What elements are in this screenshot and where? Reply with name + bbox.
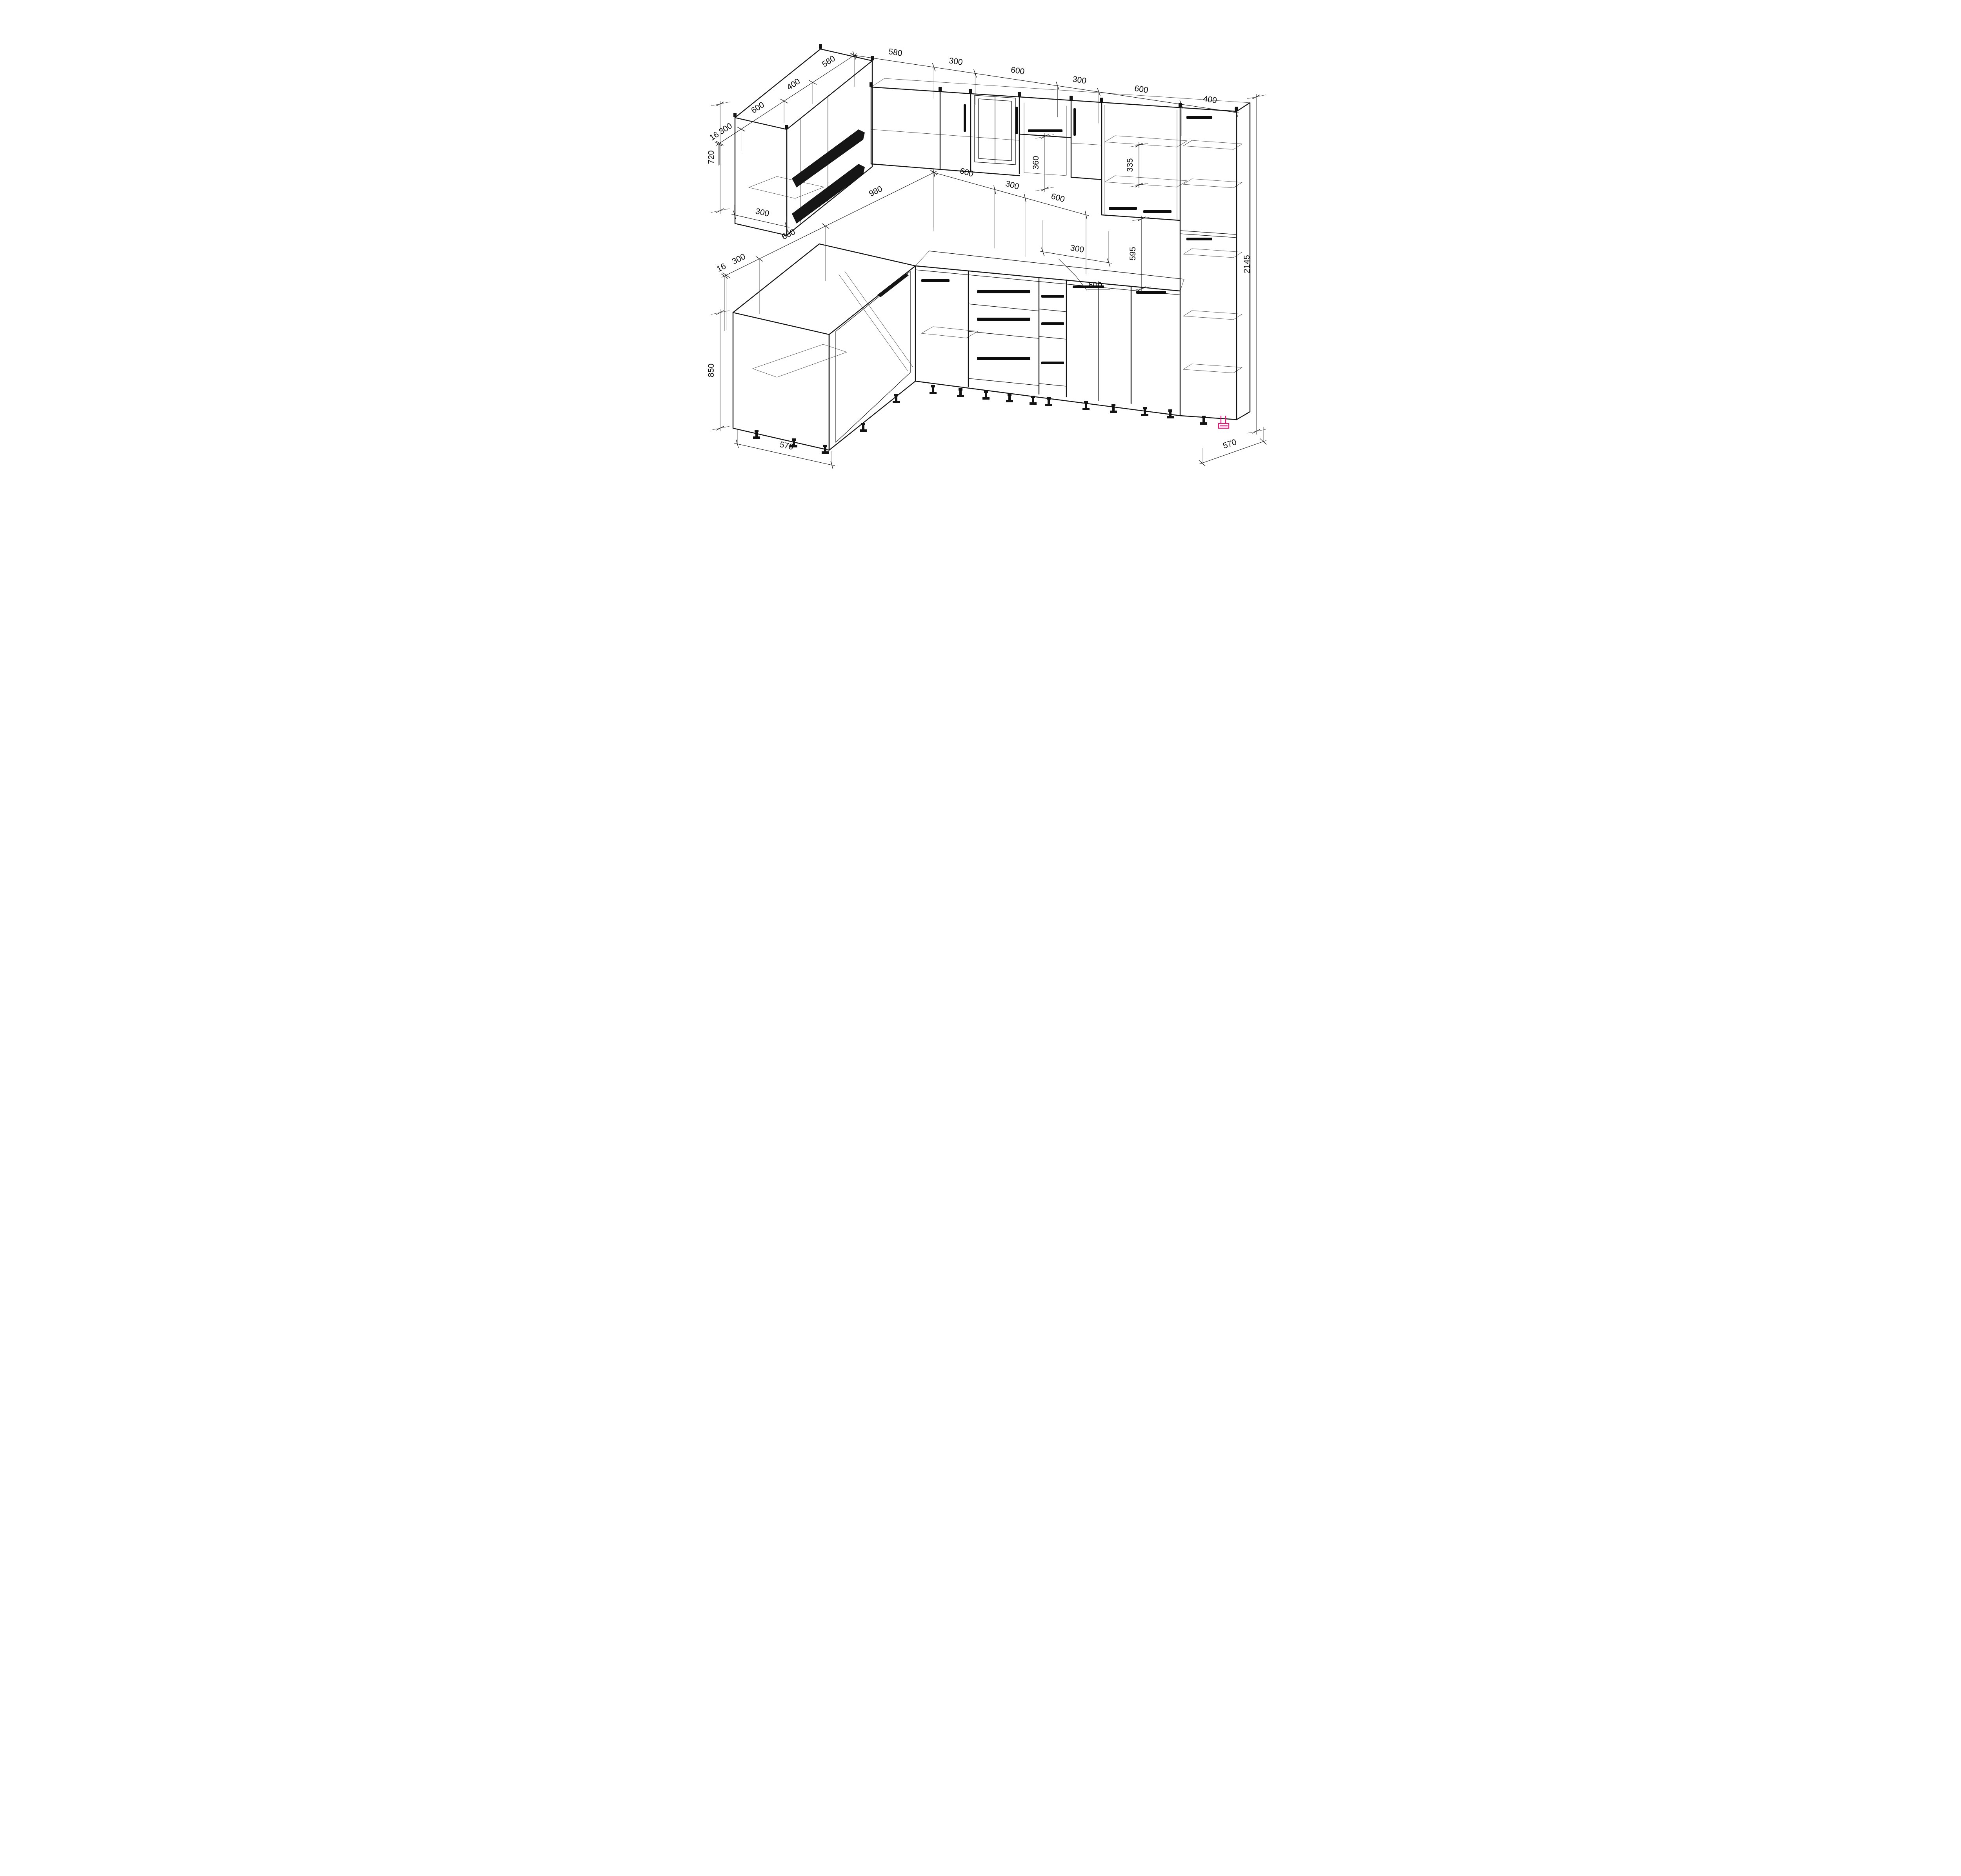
wall-cabinet-left-side-panel xyxy=(735,118,787,235)
rect xyxy=(1111,404,1115,406)
adjustable-feet xyxy=(753,385,1229,454)
cabinet-handle xyxy=(1186,238,1212,240)
dimension-label: 335 xyxy=(1126,158,1135,172)
cabinet-handle xyxy=(1015,107,1018,134)
cabinet-scene xyxy=(733,49,1250,450)
adjustable-foot xyxy=(930,385,937,394)
path xyxy=(1221,416,1226,424)
rect xyxy=(931,385,935,387)
rect xyxy=(822,451,829,454)
rect xyxy=(1144,409,1146,414)
dimension-annotations: 1630060040058058030060030060040016300600… xyxy=(707,47,1266,469)
dimension-chain-wall-cab-depth-300: 300 xyxy=(731,205,789,231)
dimension-chain-niche-width-300: 300 xyxy=(1040,220,1112,267)
dimension-label: 600 xyxy=(749,100,766,115)
dimension-chain-wall-top-width: 580300600300600400 xyxy=(851,47,1239,144)
adjustable-foot xyxy=(860,423,867,432)
rect xyxy=(893,401,900,403)
rect xyxy=(1008,393,1011,396)
rect xyxy=(1110,411,1117,413)
tall-cabinet-edges xyxy=(1180,107,1237,420)
adjustable-foot xyxy=(982,391,990,400)
wall-run-top-edge xyxy=(871,87,1237,111)
rect xyxy=(894,394,898,396)
rect xyxy=(862,425,864,429)
dimension-label: 400 xyxy=(1202,94,1217,105)
adjustable-foot xyxy=(1110,404,1117,413)
rect xyxy=(1031,396,1035,398)
dimension-label: 300 xyxy=(1070,244,1084,254)
dimension-label: 400 xyxy=(785,77,802,92)
cabinet-handle xyxy=(977,318,1030,321)
rect xyxy=(1112,406,1115,411)
rect xyxy=(1169,412,1172,416)
dimension-label: 595 xyxy=(1128,247,1137,260)
dimension-vertical-wall-cab-height-720: 720 xyxy=(707,101,729,214)
rect xyxy=(753,436,760,439)
bridge-cabinet-bottom xyxy=(1019,134,1071,138)
cabinet-handle xyxy=(977,290,1030,293)
dimension-label: 570 xyxy=(1222,438,1238,451)
dimension-label: 16 xyxy=(708,130,720,142)
dimension-label: 720 xyxy=(707,150,716,164)
mounting-bracket xyxy=(1070,96,1073,100)
cabinet-outlines xyxy=(733,49,1250,450)
rect xyxy=(860,429,867,432)
dark-details xyxy=(792,129,909,297)
mounting-bracket xyxy=(785,125,788,129)
mounting-bracket xyxy=(969,89,972,93)
rect xyxy=(959,391,962,395)
rect xyxy=(1047,397,1051,400)
rect xyxy=(1167,416,1174,418)
rect xyxy=(824,447,826,451)
countertop-front-edge xyxy=(915,266,1180,291)
leader-line xyxy=(1059,259,1088,290)
cabinet-handle xyxy=(977,357,1030,360)
dimension-vertical-hood-gap-360: 360 xyxy=(1031,133,1054,192)
cabinet-handle xyxy=(1073,108,1076,136)
dimension-label: 300 xyxy=(755,207,770,218)
rect xyxy=(985,393,987,397)
rect xyxy=(982,397,990,400)
cabinet-handle xyxy=(1109,207,1137,210)
rect xyxy=(861,423,865,425)
rect xyxy=(1006,400,1013,402)
dimension-label: 600 xyxy=(1134,84,1149,95)
dimension-label: 580 xyxy=(820,54,837,69)
dimension-label: 2145 xyxy=(1242,255,1252,273)
rect xyxy=(1141,414,1148,416)
rect xyxy=(984,391,988,393)
dimension-label: 600 xyxy=(1050,192,1066,204)
dimension-label: 600 xyxy=(1010,65,1025,76)
dimension-label: 300 xyxy=(948,56,963,67)
rect xyxy=(895,396,897,401)
dimension-label: 360 xyxy=(1031,156,1041,169)
dimension-label: 980 xyxy=(868,184,884,198)
dimension-label: 600 xyxy=(959,166,975,179)
dimension-vertical-niche-height-595: 595 xyxy=(1128,216,1151,292)
dimension-chain-base-top-width: 600300600 xyxy=(931,166,1089,274)
rect xyxy=(959,388,962,391)
rect xyxy=(957,395,964,397)
dimension-chain-base-depth-left-570: 570 xyxy=(734,430,835,469)
dimension-label: 600 xyxy=(1088,281,1102,290)
dimension-vertical-shelf-gap-335: 335 xyxy=(1126,142,1148,188)
cabinet-handle xyxy=(921,279,950,282)
dimension-label: 16 xyxy=(715,262,728,274)
rect xyxy=(823,445,827,447)
door-handle xyxy=(877,273,909,297)
cabinet-handle xyxy=(1028,129,1062,132)
base-cabinet-left-side-panel xyxy=(733,313,829,450)
rect xyxy=(1084,401,1088,404)
dimension-label: 300 xyxy=(731,252,747,266)
mounting-bracket xyxy=(1018,92,1021,96)
dimension-label: 300 xyxy=(717,121,734,136)
cabinet-handle xyxy=(1041,322,1064,325)
dimension-label: 300 xyxy=(1004,179,1020,192)
rect xyxy=(1030,402,1037,405)
mounting-brackets xyxy=(733,44,1238,129)
cabinet-handle xyxy=(964,104,966,132)
rect xyxy=(792,438,796,441)
rect xyxy=(1085,404,1087,408)
highlighted-adjustable-foot xyxy=(1219,416,1229,428)
rect xyxy=(1202,416,1206,418)
base-cabinet-left-front xyxy=(829,266,915,450)
cabinet-handle xyxy=(1143,210,1172,213)
dimension-vertical-total-height-2145: 2145 xyxy=(1242,94,1266,434)
cabinet-handle xyxy=(1136,291,1166,294)
adjustable-foot xyxy=(1006,393,1013,402)
hidden-lines xyxy=(749,78,1250,377)
rect xyxy=(1008,396,1011,400)
dimension-label: 850 xyxy=(707,364,716,377)
drawing-page: Corner kitchen cabinet set — 3D wirefram… xyxy=(694,0,1267,469)
mounting-bracket xyxy=(819,44,822,49)
dimension-label: 300 xyxy=(1072,75,1087,85)
rect xyxy=(1143,407,1147,409)
rect xyxy=(1200,422,1207,425)
rect xyxy=(1032,398,1034,402)
adjustable-foot xyxy=(957,388,964,397)
kitchen-cad-wireframe: 1630060040058058030060030060040016300600… xyxy=(694,0,1267,469)
mounting-bracket xyxy=(870,82,873,87)
rect xyxy=(1082,408,1090,410)
rect xyxy=(1048,400,1050,404)
rect xyxy=(932,387,934,392)
rect xyxy=(930,392,937,394)
rect xyxy=(755,430,759,432)
panel-lines xyxy=(801,95,1237,442)
rect xyxy=(755,432,758,436)
rect xyxy=(1168,409,1172,412)
mounting-bracket xyxy=(733,113,737,117)
mounting-bracket xyxy=(939,87,942,91)
mounting-bracket xyxy=(1100,98,1103,102)
dimension-line xyxy=(931,172,1089,216)
rect xyxy=(1202,418,1205,422)
adjustable-foot xyxy=(1082,401,1090,410)
cabinet-handle xyxy=(1041,362,1064,364)
rect xyxy=(1045,404,1052,406)
cabinet-handle xyxy=(1041,295,1064,298)
cabinet-handle xyxy=(1186,116,1212,119)
dimension-label: 580 xyxy=(888,47,903,58)
